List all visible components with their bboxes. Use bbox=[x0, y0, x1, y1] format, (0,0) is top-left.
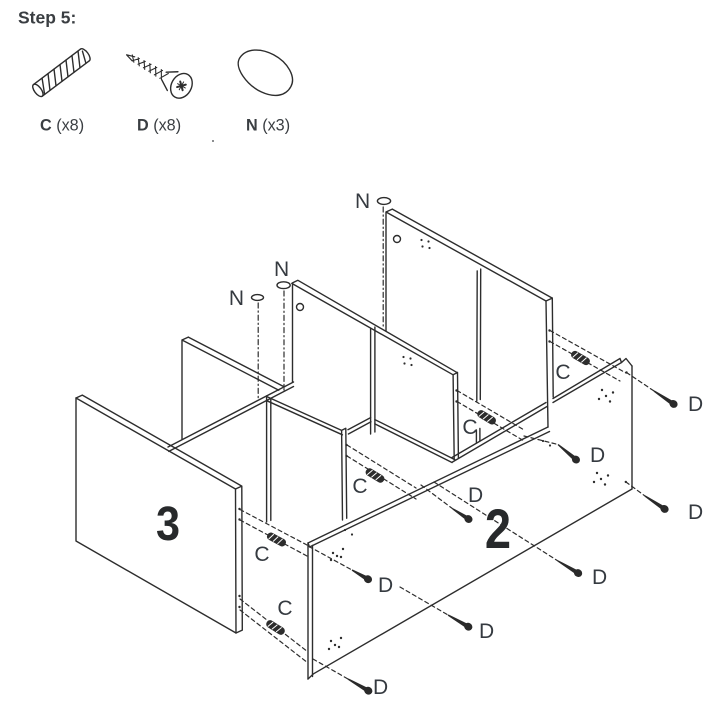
svg-text:3: 3 bbox=[156, 497, 180, 551]
svg-text:Step 5:: Step 5: bbox=[18, 8, 76, 28]
svg-text:N: N bbox=[355, 190, 370, 213]
svg-text:D: D bbox=[378, 574, 393, 597]
svg-text:N: N bbox=[229, 287, 244, 310]
svg-text:D: D bbox=[479, 620, 494, 643]
svg-text:N: N bbox=[274, 258, 289, 281]
svg-text:C: C bbox=[277, 597, 292, 620]
svg-text:D: D bbox=[688, 393, 703, 416]
svg-text:D: D bbox=[373, 676, 388, 699]
svg-text:C: C bbox=[254, 543, 269, 566]
svg-text:C (x8): C (x8) bbox=[40, 117, 84, 135]
svg-text:N (x3): N (x3) bbox=[246, 117, 290, 135]
svg-text:C: C bbox=[555, 361, 570, 384]
svg-text:C: C bbox=[352, 475, 367, 498]
svg-text:D: D bbox=[590, 444, 605, 467]
svg-text:D: D bbox=[468, 484, 483, 507]
svg-text:D: D bbox=[592, 566, 607, 589]
svg-text:D: D bbox=[688, 501, 703, 524]
svg-text:C: C bbox=[462, 416, 477, 439]
svg-text:D (x8): D (x8) bbox=[137, 117, 181, 135]
